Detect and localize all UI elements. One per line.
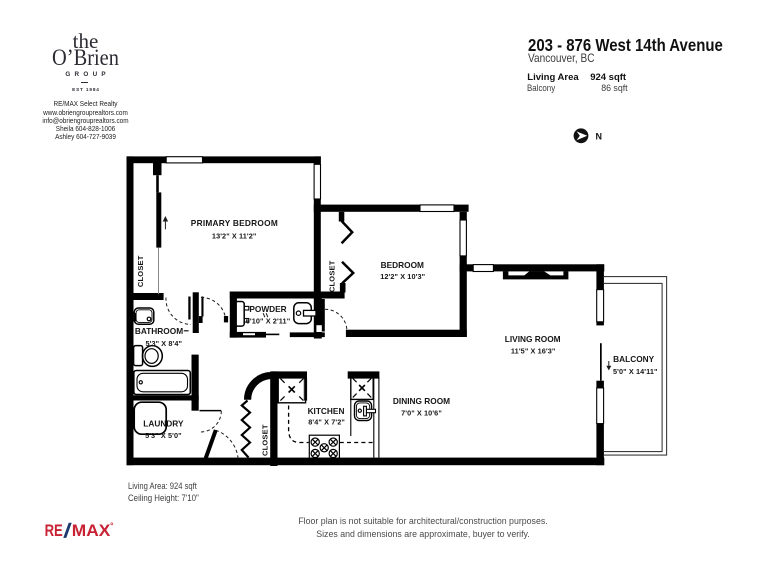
svg-text:LAUNDRY: LAUNDRY — [143, 419, 184, 429]
svg-text:KITCHEN: KITCHEN — [308, 406, 345, 416]
svg-text:PRIMARY BEDROOM: PRIMARY BEDROOM — [191, 218, 278, 228]
svg-text:5'3" X 8'4": 5'3" X 8'4" — [145, 339, 182, 348]
svg-text:CLOSET: CLOSET — [260, 424, 269, 456]
svg-text:8'4" X 7'2": 8'4" X 7'2" — [308, 417, 345, 426]
svg-text:5'0" X 14'11": 5'0" X 14'11" — [613, 367, 658, 376]
svg-text:BALCONY: BALCONY — [613, 354, 654, 364]
svg-text:13'2" X 11'2": 13'2" X 11'2" — [212, 231, 257, 240]
svg-text:6'10" X 2'11": 6'10" X 2'11" — [246, 316, 291, 325]
svg-text:7'0" X 10'6": 7'0" X 10'6" — [401, 409, 442, 418]
svg-text:CLOSET: CLOSET — [328, 260, 337, 292]
svg-text:11'5" X 16'3": 11'5" X 16'3" — [511, 347, 556, 356]
svg-text:POWDER: POWDER — [249, 304, 286, 314]
svg-text:CLOSET: CLOSET — [136, 255, 145, 287]
svg-text:5'3" X 5'0": 5'3" X 5'0" — [145, 431, 182, 440]
svg-text:DINING ROOM: DINING ROOM — [393, 396, 450, 406]
svg-text:12'2" X 10'3": 12'2" X 10'3" — [380, 272, 425, 281]
svg-text:BATHROOM: BATHROOM — [135, 326, 183, 336]
svg-text:BEDROOM: BEDROOM — [381, 260, 424, 270]
svg-text:LIVING ROOM: LIVING ROOM — [505, 334, 561, 344]
